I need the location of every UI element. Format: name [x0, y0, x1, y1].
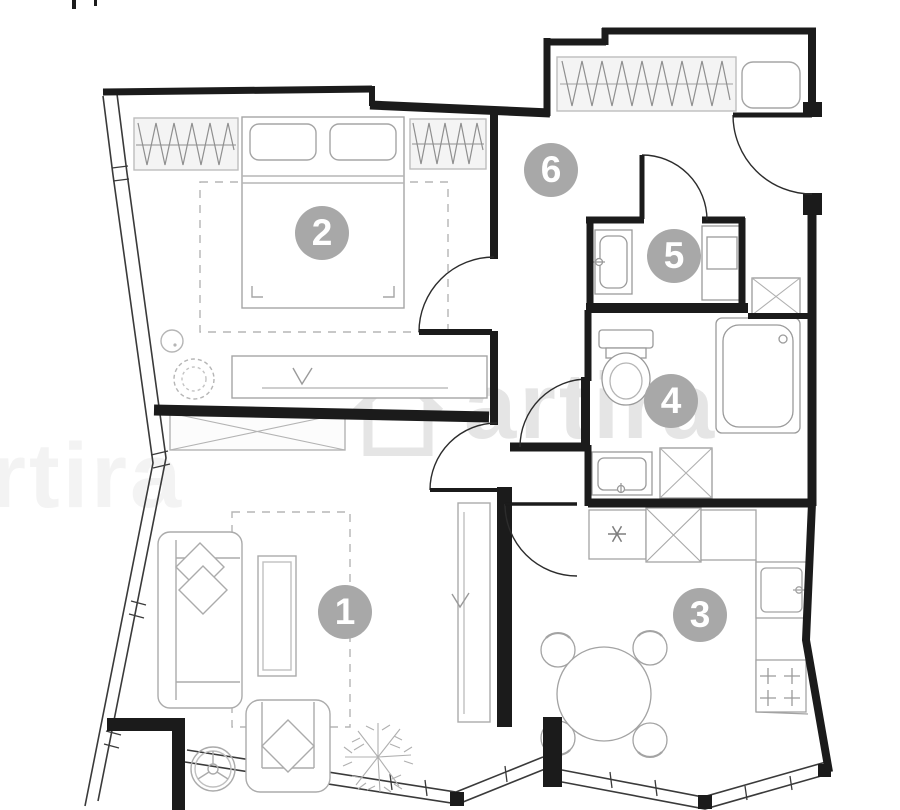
dishwasher-icon [589, 510, 646, 559]
sink-icon [593, 230, 632, 294]
wardrobe-icon [557, 57, 736, 111]
kitchen-fixtures [541, 508, 808, 757]
room-badge-3: 3 [673, 588, 727, 642]
armchair-icon [246, 700, 330, 792]
room-badge-2: 2 [295, 206, 349, 260]
fridge-icon [646, 508, 701, 562]
bedroom-furniture [134, 117, 487, 399]
sofa-icon [158, 532, 242, 708]
bathroom-door [520, 377, 590, 447]
room-badge-4: 4 [644, 374, 698, 428]
dining-table-icon [557, 647, 651, 741]
bathtub-icon [716, 318, 800, 433]
bench-icon [742, 62, 800, 108]
room-badge-1: 1 [318, 585, 372, 639]
plant-icon [343, 723, 413, 792]
floor-plan: artira artira [0, 0, 900, 810]
dresser-icon [232, 356, 487, 398]
floor-plan-drawing [0, 0, 900, 810]
plant-icon [161, 330, 214, 399]
room-badge-5: 5 [647, 229, 701, 283]
kitchen-sink-icon [756, 562, 808, 618]
wardrobe-icon [410, 119, 486, 169]
sink-icon [592, 452, 652, 495]
coffee-table-icon [258, 556, 296, 676]
bedroom-door [419, 257, 494, 332]
tv-console-icon [452, 503, 490, 722]
stove-icon [756, 660, 806, 712]
room-badge-6: 6 [524, 143, 578, 197]
washing-machine-icon [660, 448, 712, 498]
entry-door [733, 115, 812, 194]
shaft-icon [752, 278, 800, 315]
hall-closet [557, 57, 800, 111]
living-room-door [430, 423, 497, 490]
laundry-door [642, 155, 707, 220]
wardrobe-icon [134, 118, 238, 170]
kitchen-door [505, 504, 577, 576]
washing-machine-icon [702, 226, 742, 300]
